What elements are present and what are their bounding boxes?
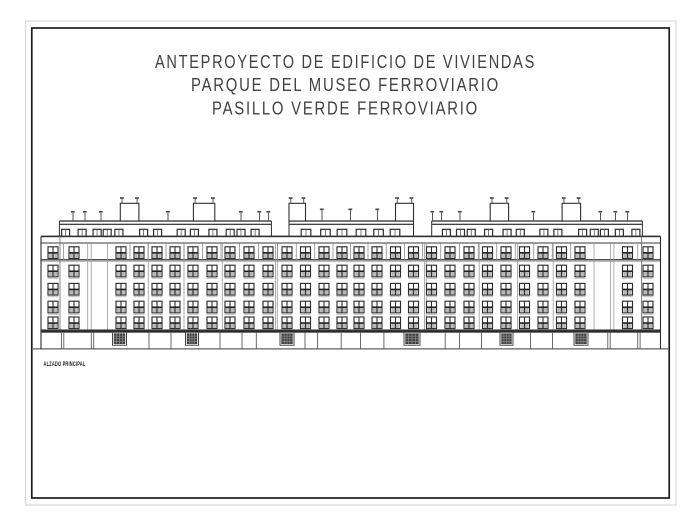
svg-text:ALZADO PRINCIPAL: ALZADO PRINCIPAL — [44, 361, 86, 368]
svg-text:PARQUE DEL MUSEO FERROVIARI: PARQUE DEL MUSEO FERROVIARIO — [191, 74, 500, 95]
svg-text:ANTEPROYECTO DE EDIFICIO DE: ANTEPROYECTO DE EDIFICIO DE VIVIENDAS — [155, 51, 536, 72]
svg-text:PASILLO VERDE FERROVIARIO: PASILLO VERDE FERROVIARIO — [212, 98, 479, 119]
